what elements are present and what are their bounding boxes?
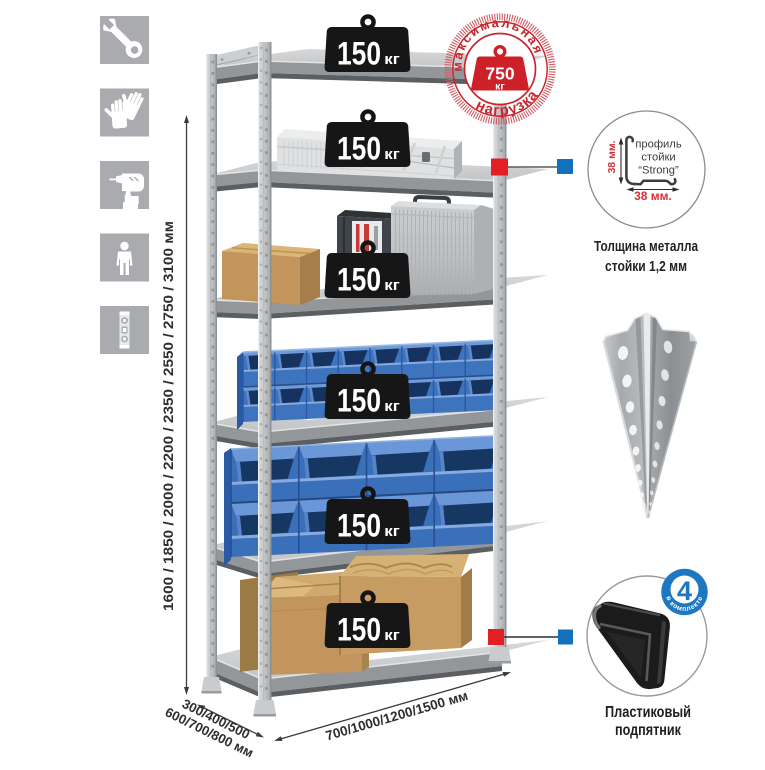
svg-text:150: 150 <box>337 131 381 167</box>
svg-text:кг: кг <box>384 523 400 540</box>
svg-text:1600 / 1850 / 2000 / 2200 / 23: 1600 / 1850 / 2000 / 2200 / 2350 / 2550 … <box>161 221 176 611</box>
svg-text:150: 150 <box>337 612 381 648</box>
svg-text:кг: кг <box>384 146 400 163</box>
svg-text:стойки 1,2 мм: стойки 1,2 мм <box>605 258 687 275</box>
svg-text:38 мм.: 38 мм. <box>634 189 672 203</box>
svg-text:700/1000/1200/1500 мм: 700/1000/1200/1500 мм <box>324 688 470 744</box>
svg-text:профиль: профиль <box>635 139 681 151</box>
svg-text:кг: кг <box>384 51 400 68</box>
svg-text:150: 150 <box>337 36 381 72</box>
svg-text:150: 150 <box>337 383 381 419</box>
svg-text:кг: кг <box>384 627 400 644</box>
svg-text:4: 4 <box>677 576 692 606</box>
svg-text:кг: кг <box>384 398 400 415</box>
svg-text:кг: кг <box>384 277 400 294</box>
svg-text:кг: кг <box>495 81 505 93</box>
svg-text:38 мм.: 38 мм. <box>606 140 618 173</box>
svg-text:“Strong”: “Strong” <box>638 165 679 177</box>
svg-text:подпятник: подпятник <box>615 722 682 739</box>
svg-text:150: 150 <box>337 508 381 544</box>
svg-text:150: 150 <box>337 262 381 298</box>
svg-text:Пластиковый: Пластиковый <box>605 704 691 721</box>
svg-text:стойки: стойки <box>641 152 675 164</box>
svg-text:Толщина металла: Толщина металла <box>594 238 699 255</box>
